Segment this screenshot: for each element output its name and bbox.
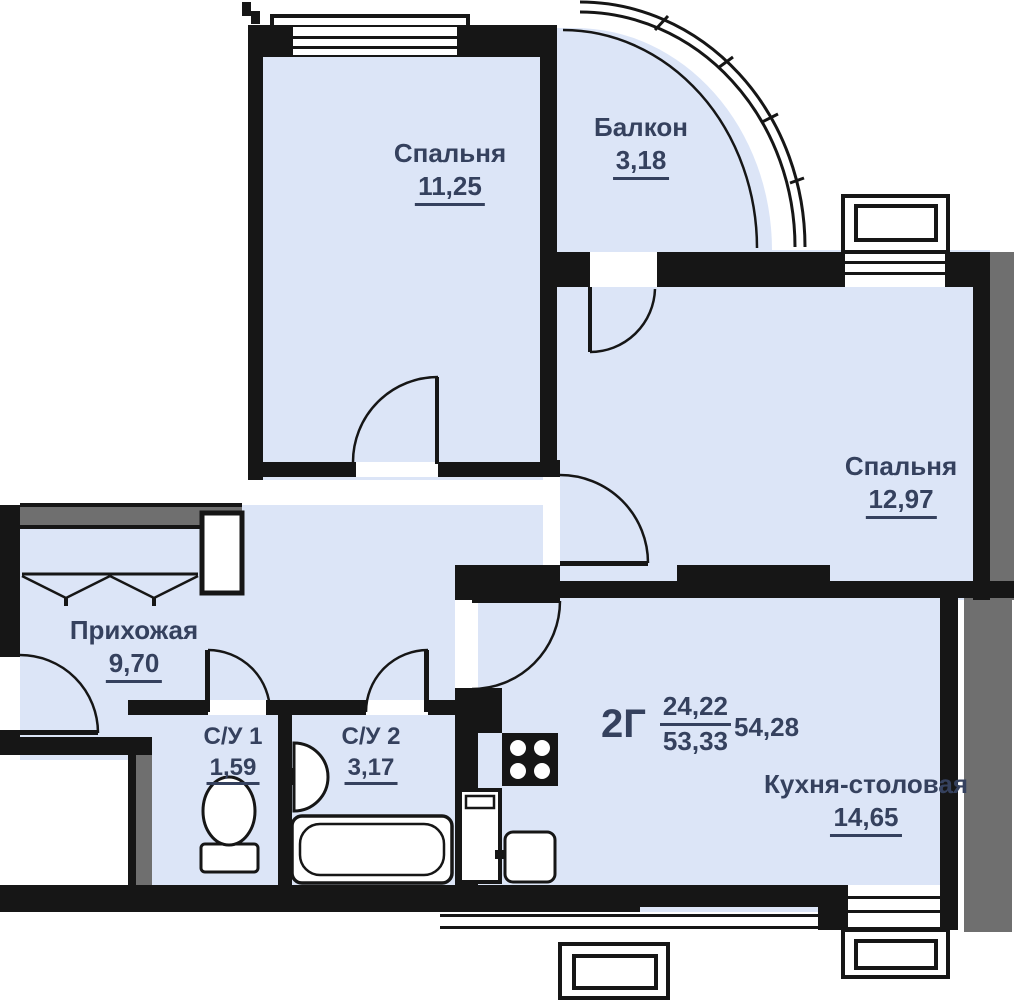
floor-plan: Спальня 11,25 Балкон 3,18 Спальня 12,97 …	[0, 0, 1018, 1000]
room-area: 9,70	[106, 649, 163, 683]
roof-mark	[251, 11, 260, 24]
room-name: Прихожая	[70, 616, 198, 646]
room-label-kitchen: Кухня-столовая 14,65	[764, 770, 968, 837]
apartment-type: 2Г	[601, 704, 646, 744]
apartment-summary: 2Г 24,22 53,33 54,28	[601, 692, 799, 755]
room-name: Спальня	[845, 452, 957, 482]
room-name: С/У 2	[342, 723, 401, 751]
bedroom-2-floor	[545, 250, 990, 600]
room-name: Кухня-столовая	[764, 770, 968, 800]
bedroom-1-floor	[248, 25, 557, 480]
kitchen-sink-icon	[495, 832, 555, 882]
toilet-icon	[201, 777, 258, 872]
apartment-area: 53,33	[663, 726, 728, 756]
room-area: 1,59	[207, 754, 260, 786]
room-label-balcony: Балкон 3,18	[594, 113, 688, 180]
room-name: Балкон	[594, 113, 688, 143]
room-area: 3,17	[345, 754, 398, 786]
room-name: Спальня	[394, 139, 506, 169]
room-area: 12,97	[865, 485, 936, 519]
living-area: 24,22	[660, 692, 731, 726]
room-label-bedroom-1: Спальня 11,25	[394, 139, 506, 206]
room-label-bathroom-1: С/У 1 1,59	[204, 723, 263, 785]
room-label-bedroom-2: Спальня 12,97	[845, 452, 957, 519]
bedroom-2-window	[843, 196, 948, 287]
bedroom-1-window	[293, 27, 457, 55]
stove-icon	[502, 733, 558, 786]
hallway-shaft	[202, 513, 242, 593]
total-area: 54,28	[734, 712, 799, 743]
room-area: 3,18	[613, 146, 670, 180]
room-area: 11,25	[415, 172, 485, 206]
bathtub-icon	[292, 816, 452, 883]
roof-mark	[242, 2, 251, 16]
room-name: С/У 1	[204, 723, 263, 751]
room-area: 14,65	[830, 803, 901, 837]
room-label-hallway: Прихожая 9,70	[70, 616, 198, 683]
room-label-bathroom-2: С/У 2 3,17	[342, 723, 401, 785]
apartment-area-fraction: 24,22 53,33	[660, 692, 731, 755]
